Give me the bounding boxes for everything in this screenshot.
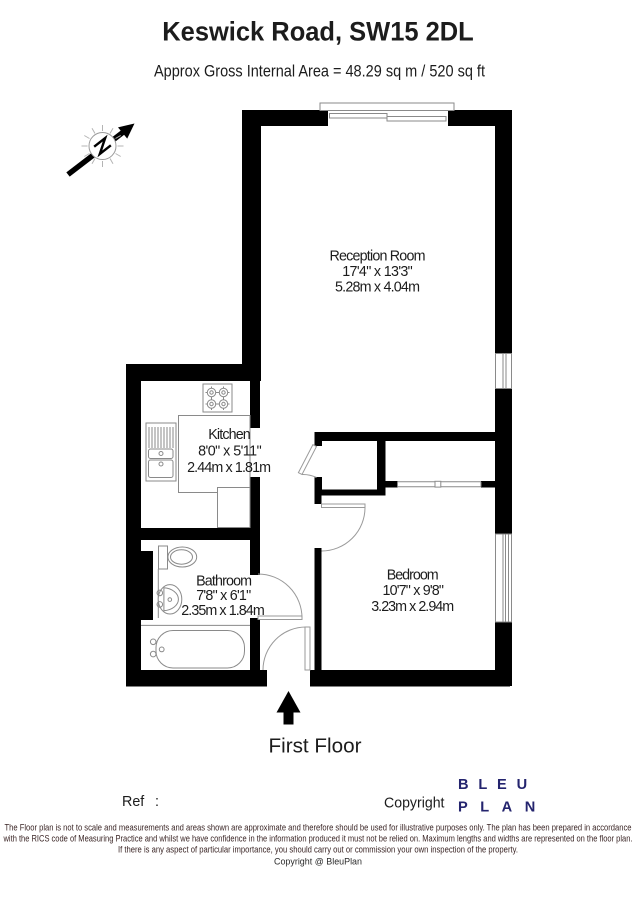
- svg-text:Reception Room: Reception Room: [330, 249, 426, 265]
- svg-text:Approx Gross Internal Area = 4: Approx Gross Internal Area = 48.29 sq m …: [154, 61, 485, 80]
- svg-text:7'8" x 6'1": 7'8" x 6'1": [196, 588, 251, 604]
- svg-text:Ref: Ref: [122, 794, 144, 810]
- svg-text:First Floor: First Floor: [269, 735, 362, 758]
- svg-text:2.44m x 1.81m: 2.44m x 1.81m: [187, 460, 271, 476]
- svg-text:10'7" x 9'8": 10'7" x 9'8": [382, 583, 444, 599]
- svg-text:with the RICS code of Measurin: with the RICS code of Measuring Practice…: [3, 834, 633, 844]
- svg-text:Bathroom: Bathroom: [196, 573, 252, 589]
- svg-text:Bedroom: Bedroom: [387, 568, 439, 584]
- svg-text:Kitchen: Kitchen: [208, 427, 251, 443]
- svg-text:17'4" x 13'3": 17'4" x 13'3": [342, 264, 413, 280]
- svg-text:Copyright @ BleuPlan: Copyright @ BleuPlan: [274, 857, 362, 867]
- svg-text:Copyright: Copyright: [384, 796, 445, 812]
- svg-text:The Floor plan is not to scale: The Floor plan is not to scale and measu…: [5, 823, 632, 833]
- svg-text::: :: [155, 794, 159, 810]
- svg-text:2.35m x 1.84m: 2.35m x 1.84m: [181, 603, 265, 619]
- svg-text:3.23m x 2.94m: 3.23m x 2.94m: [371, 599, 454, 615]
- svg-text:8'0" x 5'11": 8'0" x 5'11": [198, 443, 262, 459]
- svg-text:PLAN: PLAN: [458, 799, 548, 815]
- svg-text:BLEU: BLEU: [458, 777, 537, 793]
- svg-text:5.28m x 4.04m: 5.28m x 4.04m: [335, 280, 420, 296]
- svg-text:Keswick Road, SW15 2DL: Keswick Road, SW15 2DL: [162, 17, 474, 47]
- svg-text:If there is any aspect of part: If there is any aspect of particular imp…: [118, 845, 518, 855]
